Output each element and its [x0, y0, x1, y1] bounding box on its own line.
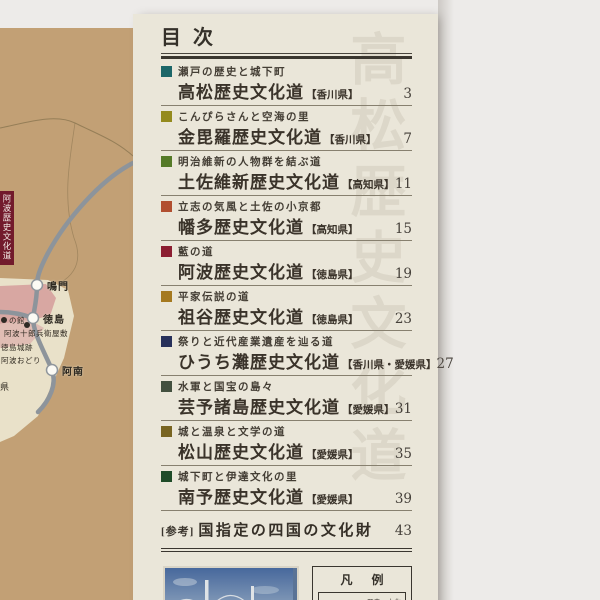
- heading-rule-thick: [161, 56, 412, 59]
- entry-prefecture: 【愛媛県】: [306, 447, 359, 462]
- map-city-tokushima: 徳島: [43, 311, 65, 326]
- reference-page-number: 43: [395, 523, 412, 539]
- toc-entry: 城と温泉と文学の道 松山歴史文化道 【愛媛県】 35: [161, 421, 412, 466]
- entry-title: 阿波歴史文化道: [178, 258, 304, 283]
- entry-subtitle: 祭りと近代産業遺産を辿る道: [178, 334, 334, 349]
- entry-title: ひうち灘歴史文化道: [178, 348, 340, 373]
- toc-entry: 祭りと近代産業遺産を辿る道 ひうち灘歴史文化道 【香川県・愛媛県】 27: [161, 331, 412, 376]
- toc-page: 高松歴史文化道 目次 瀬戸の歴史と城下町 高松歴史文化道 【香川県】 3 こんぴ…: [133, 14, 438, 600]
- reference-row: [参考] 国指定の四国の文化財 43: [161, 511, 412, 548]
- category-color-square: [161, 156, 172, 167]
- category-color-square: [161, 201, 172, 212]
- bottom-section: 凡 例 歴史・文化道のルート 同上 建設中 （調査箇所含む）: [161, 566, 412, 600]
- entry-subtitle: 城下町と伊達文化の里: [178, 469, 298, 484]
- entry-prefecture: 【香川県】: [324, 132, 377, 147]
- entry-subtitle-row: 藍の道: [161, 244, 412, 258]
- entry-title: 高松歴史文化道: [178, 78, 304, 103]
- entry-title: 祖谷歴史文化道: [178, 303, 304, 328]
- map-poi-yakata: の館: [9, 315, 25, 326]
- category-color-square: [161, 111, 172, 122]
- entry-page-number: 19: [395, 266, 412, 282]
- category-color-square: [161, 246, 172, 257]
- entry-subtitle-row: 城と温泉と文学の道: [161, 424, 412, 438]
- entry-subtitle: こんぴらさんと空海の里: [178, 109, 310, 124]
- toc-entry: 水軍と国宝の島々 芸予諸島歴史文化道 【愛媛県】 31: [161, 376, 412, 421]
- bridge-photo: [163, 566, 299, 600]
- entry-subtitle-row: 水軍と国宝の島々: [161, 379, 412, 393]
- entry-subtitle-row: 平家伝説の道: [161, 289, 412, 303]
- entry-page-number: 35: [395, 446, 412, 462]
- entry-title-row: 松山歴史文化道 【愛媛県】 35: [161, 438, 412, 461]
- category-color-square: [161, 381, 172, 392]
- map-city-naruto: 鳴門: [47, 278, 69, 293]
- toc-heading: 目次: [161, 26, 412, 50]
- entry-prefecture: 【香川県】: [306, 87, 359, 102]
- entry-title: 芸予諸島歴史文化道: [178, 393, 340, 418]
- entry-page-number: 15: [395, 221, 412, 237]
- entry-subtitle: 瀬戸の歴史と城下町: [178, 64, 286, 79]
- toc-entry: 明治維新の人物群を結ぶ道 土佐維新歴史文化道 【高知県】 11: [161, 151, 412, 196]
- entry-subtitle-row: こんぴらさんと空海の里: [161, 109, 412, 123]
- entry-title-row: 金毘羅歴史文化道 【香川県】 7: [161, 123, 412, 146]
- category-color-square: [161, 66, 172, 77]
- map-route-banner: 阿波歴史文化道: [0, 191, 14, 265]
- map-poi-ken: 県: [0, 380, 10, 393]
- category-color-square: [161, 426, 172, 437]
- entry-title-row: 祖谷歴史文化道 【徳島県】 23: [161, 303, 412, 326]
- map-legend-box: 凡 例 歴史・文化道のルート 同上 建設中 （調査箇所含む）: [312, 566, 412, 600]
- entry-subtitle-row: 城下町と伊達文化の里: [161, 469, 412, 483]
- map-poi-castle: 徳島城跡: [1, 342, 33, 353]
- category-color-square: [161, 291, 172, 302]
- entry-page-number: 31: [395, 401, 412, 417]
- entry-subtitle-row: 祭りと近代産業遺産を辿る道: [161, 334, 412, 348]
- entry-title-row: 土佐維新歴史文化道 【高知県】 11: [161, 168, 412, 191]
- entry-subtitle-row: 明治維新の人物群を結ぶ道: [161, 154, 412, 168]
- entry-title: 土佐維新歴史文化道: [178, 168, 340, 193]
- entry-title: 金毘羅歴史文化道: [178, 123, 322, 148]
- entry-page-number: 39: [395, 491, 412, 507]
- toc-entry: 立志の気風と土佐の小京都 幡多歴史文化道 【高知県】 15: [161, 196, 412, 241]
- entry-subtitle-row: 瀬戸の歴史と城下町: [161, 64, 412, 78]
- entry-subtitle: 藍の道: [178, 244, 214, 259]
- entry-title-row: 高松歴史文化道 【香川県】 3: [161, 78, 412, 101]
- footer-rule-top: [161, 548, 412, 549]
- toc-content: 目次 瀬戸の歴史と城下町 高松歴史文化道 【香川県】 3 こんぴらさんと空海の里…: [133, 14, 438, 600]
- entry-subtitle: 水軍と国宝の島々: [178, 379, 274, 394]
- entry-title-row: 阿波歴史文化道 【徳島県】 19: [161, 258, 412, 281]
- heading-rule-thin: [161, 53, 412, 54]
- entry-prefecture: 【愛媛県】: [342, 402, 395, 417]
- entry-subtitle: 立志の気風と土佐の小京都: [178, 199, 322, 214]
- entry-prefecture: 【高知県】: [306, 222, 359, 237]
- entry-subtitle-row: 立志の気風と土佐の小京都: [161, 199, 412, 213]
- entry-title-row: 南予歴史文化道 【愛媛県】 39: [161, 483, 412, 506]
- entry-title-row: 芸予諸島歴史文化道 【愛媛県】 31: [161, 393, 412, 416]
- toc-entry: 藍の道 阿波歴史文化道 【徳島県】 19: [161, 241, 412, 286]
- toc-entry-list: 瀬戸の歴史と城下町 高松歴史文化道 【香川県】 3 こんぴらさんと空海の里 金毘…: [161, 61, 412, 511]
- reference-title: 国指定の四国の文化財: [198, 519, 373, 540]
- legend-items: 歴史・文化道のルート 同上 建設中 （調査箇所含む） 同上 自動車道: [318, 592, 406, 600]
- footer-rule-bottom: [161, 551, 412, 552]
- entry-subtitle: 城と温泉と文学の道: [178, 424, 286, 439]
- entry-subtitle: 明治維新の人物群を結ぶ道: [178, 154, 322, 169]
- entry-title-row: ひうち灘歴史文化道 【香川県・愛媛県】 27: [161, 348, 412, 371]
- book-photo-scene: 阿波歴史文化道 鳴門 徳島 阿南 の館 阿波十郎兵衛屋敷 徳島城跡 阿波おどり …: [0, 0, 600, 600]
- entry-title-row: 幡多歴史文化道 【高知県】 15: [161, 213, 412, 236]
- entry-prefecture: 【高知県】: [342, 177, 395, 192]
- map-poi-awaodori: 阿波おどり: [1, 355, 41, 366]
- map-page: 阿波歴史文化道 鳴門 徳島 阿南 の館 阿波十郎兵衛屋敷 徳島城跡 阿波おどり …: [0, 28, 133, 600]
- entry-title: 幡多歴史文化道: [178, 213, 304, 238]
- entry-prefecture: 【徳島県】: [306, 312, 359, 327]
- entry-subtitle: 平家伝説の道: [178, 289, 250, 304]
- category-color-square: [161, 336, 172, 347]
- entry-prefecture: 【愛媛県】: [306, 492, 359, 507]
- toc-entry: 城下町と伊達文化の里 南予歴史文化道 【愛媛県】 39: [161, 466, 412, 511]
- shikoku-map-art: [0, 28, 133, 600]
- toc-entry: 瀬戸の歴史と城下町 高松歴史文化道 【香川県】 3: [161, 61, 412, 106]
- map-city-anan: 阿南: [62, 363, 84, 378]
- reference-bracket: [参考]: [161, 523, 194, 539]
- entry-page-number: 23: [395, 311, 412, 327]
- entry-prefecture: 【徳島県】: [306, 267, 359, 282]
- toc-entry: こんぴらさんと空海の里 金毘羅歴史文化道 【香川県】 7: [161, 106, 412, 151]
- entry-page-number: 3: [403, 86, 412, 102]
- entry-page-number: 11: [395, 176, 412, 192]
- bridge-photo-art: [165, 568, 293, 600]
- entry-title: 南予歴史文化道: [178, 483, 304, 508]
- entry-title: 松山歴史文化道: [178, 438, 304, 463]
- page-edge-shadow: [438, 0, 454, 600]
- map-poi-jurobe: 阿波十郎兵衛屋敷: [4, 328, 68, 339]
- entry-page-number: 7: [403, 131, 412, 147]
- toc-entry: 平家伝説の道 祖谷歴史文化道 【徳島県】 23: [161, 286, 412, 331]
- category-color-square: [161, 471, 172, 482]
- entry-prefecture: 【香川県・愛媛県】: [342, 357, 437, 372]
- legend-title: 凡 例: [318, 571, 406, 588]
